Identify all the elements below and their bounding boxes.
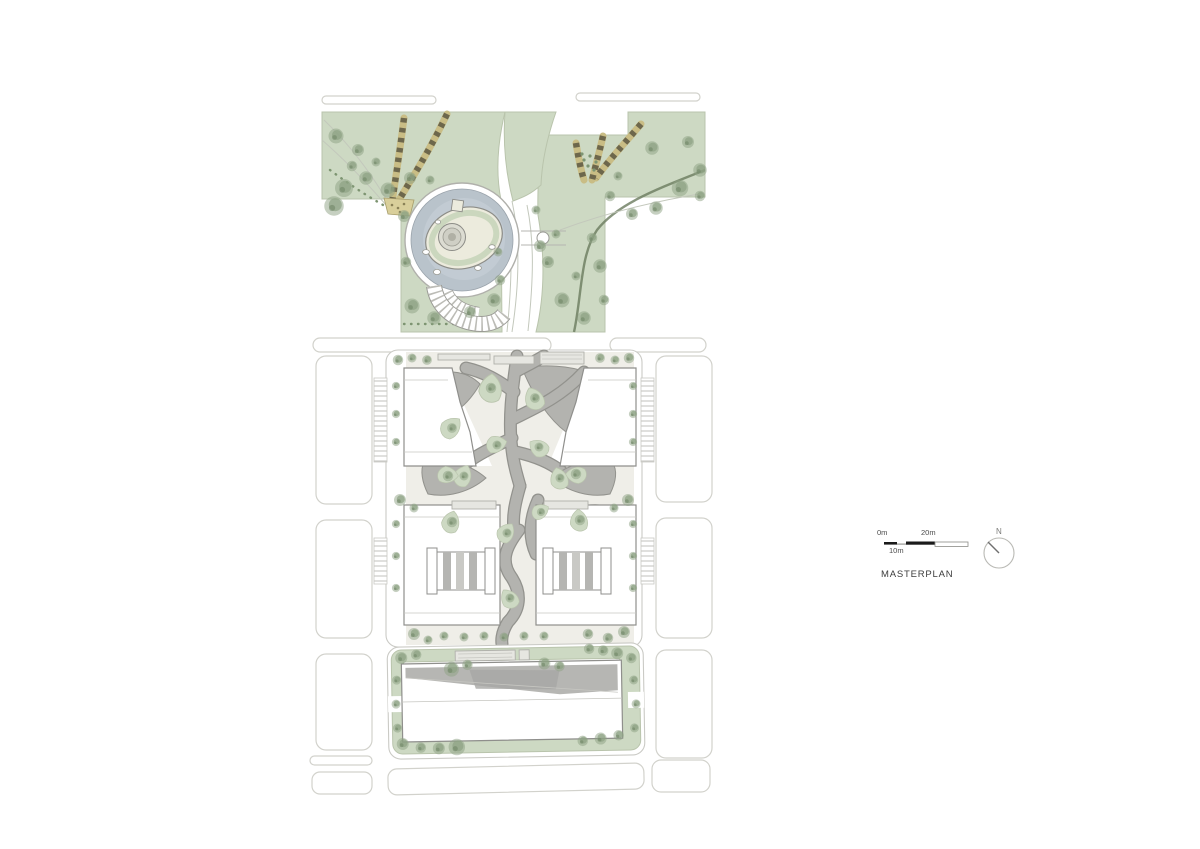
road-top-right: [576, 93, 700, 101]
campus-block-b: [387, 643, 645, 760]
site-plan-svg: [0, 0, 1200, 849]
parcel-bottom-center: [388, 763, 645, 795]
canopy-1: [438, 354, 490, 360]
stair-core-west: [427, 548, 495, 594]
pavilion-core: [448, 233, 456, 241]
canopy-south: [455, 650, 515, 661]
canopy-5: [544, 501, 588, 509]
north-park: [322, 112, 707, 332]
parcel-bottom-right: [652, 760, 710, 792]
scale-seg-10-20: [906, 542, 935, 545]
road-top-left: [322, 96, 436, 104]
parcel-right-1: [656, 356, 712, 502]
canopy-2: [494, 356, 534, 364]
parcel-left-2: [316, 520, 372, 638]
island-bridge: [451, 199, 463, 211]
north-label: N: [996, 527, 1002, 536]
canopy-south-2: [519, 650, 529, 660]
parcel-right-2: [656, 518, 712, 638]
scale-seg-0-10: [884, 542, 897, 545]
parcel-right-3: [656, 650, 712, 758]
parcel-left-3: [316, 654, 372, 750]
masterplan-canvas: 0m 10m 20m N MASTERPLAN: [0, 0, 1200, 849]
scale-label-10m: 10m: [889, 546, 904, 555]
wavy-path-2: [527, 205, 532, 331]
stair-core-east: [543, 548, 611, 594]
parcel-bottom-left: [312, 772, 372, 794]
north-arrow: [984, 538, 1014, 568]
scale-label-20m: 20m: [921, 528, 936, 537]
plan-title: MASTERPLAN: [881, 569, 953, 580]
parcel-left-1: [316, 356, 372, 504]
canopy-4: [452, 501, 496, 509]
canopy-3: [540, 352, 584, 364]
scale-seg-open: [935, 542, 968, 546]
scale-label-0m: 0m: [877, 528, 887, 537]
north-arrow-needle: [988, 542, 999, 553]
scale-connector: [897, 544, 906, 545]
road-bottom-left: [310, 756, 372, 765]
campus-block-a: [374, 350, 654, 647]
